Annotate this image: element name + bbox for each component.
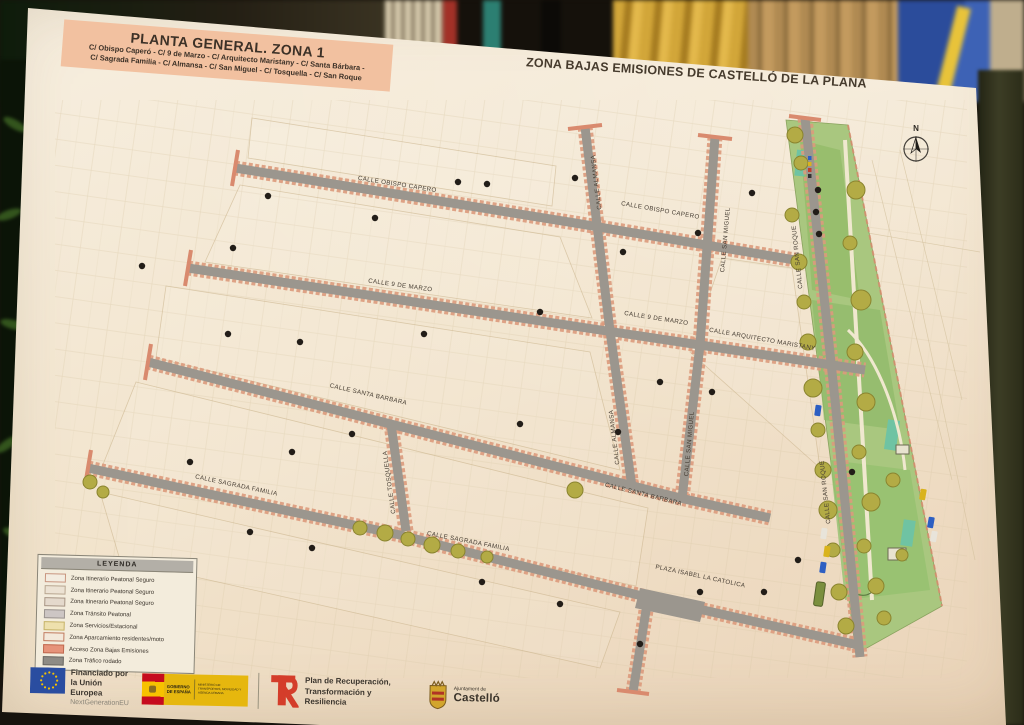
legend-swatch [45, 574, 66, 584]
eu-text-line2: la Unión Europea [70, 678, 132, 699]
eu-text-line3: NextGenerationEU [70, 699, 131, 707]
photo-scene: N CALLE OBISPO CAPERO CALLE OBISPO CAPER… [0, 0, 1024, 725]
gobierno-name-line2: DE ESPAÑA [167, 689, 191, 695]
map-legend: LEYENDA Zona Itinerario Peatonal Seguro … [35, 554, 198, 674]
legend-swatch [43, 656, 64, 666]
ministry-text: MINISTERIO DE TRANSPORTES, MOVILIDAD Y A… [198, 684, 242, 697]
prtr-logo-block: Plan de Recuperación, Transformación y R… [268, 672, 403, 713]
footer-divider [257, 673, 259, 709]
playground-icon [896, 445, 909, 454]
poster-board: N CALLE OBISPO CAPERO CALLE OBISPO CAPER… [0, 0, 1024, 725]
compass-north-label: N [913, 124, 919, 133]
eu-funding-logo: Financiado por la Unión Europea NextGene… [30, 667, 133, 707]
prtr-text-line2: Transformación y Resiliencia [304, 686, 402, 710]
legend-swatch [44, 609, 65, 619]
ajuntament-text-line2: Castelló [453, 692, 500, 705]
legend-swatch [43, 632, 64, 642]
legend-swatch [43, 644, 64, 654]
ajuntament-castello-logo: Ajuntament de Castelló [426, 679, 500, 711]
legend-swatch [44, 585, 65, 595]
legend-title: LEYENDA [41, 557, 193, 573]
legend-swatch [44, 597, 65, 607]
gobierno-espana-logo: GOBIERNO DE ESPAÑA MINISTERIO DE TRANSPO… [141, 673, 248, 706]
eu-flag-icon [30, 667, 66, 694]
spain-flag-icon [141, 673, 164, 704]
castello-crest-icon [426, 679, 449, 709]
legend-swatch [44, 621, 65, 631]
prtr-tr-icon [268, 672, 299, 711]
